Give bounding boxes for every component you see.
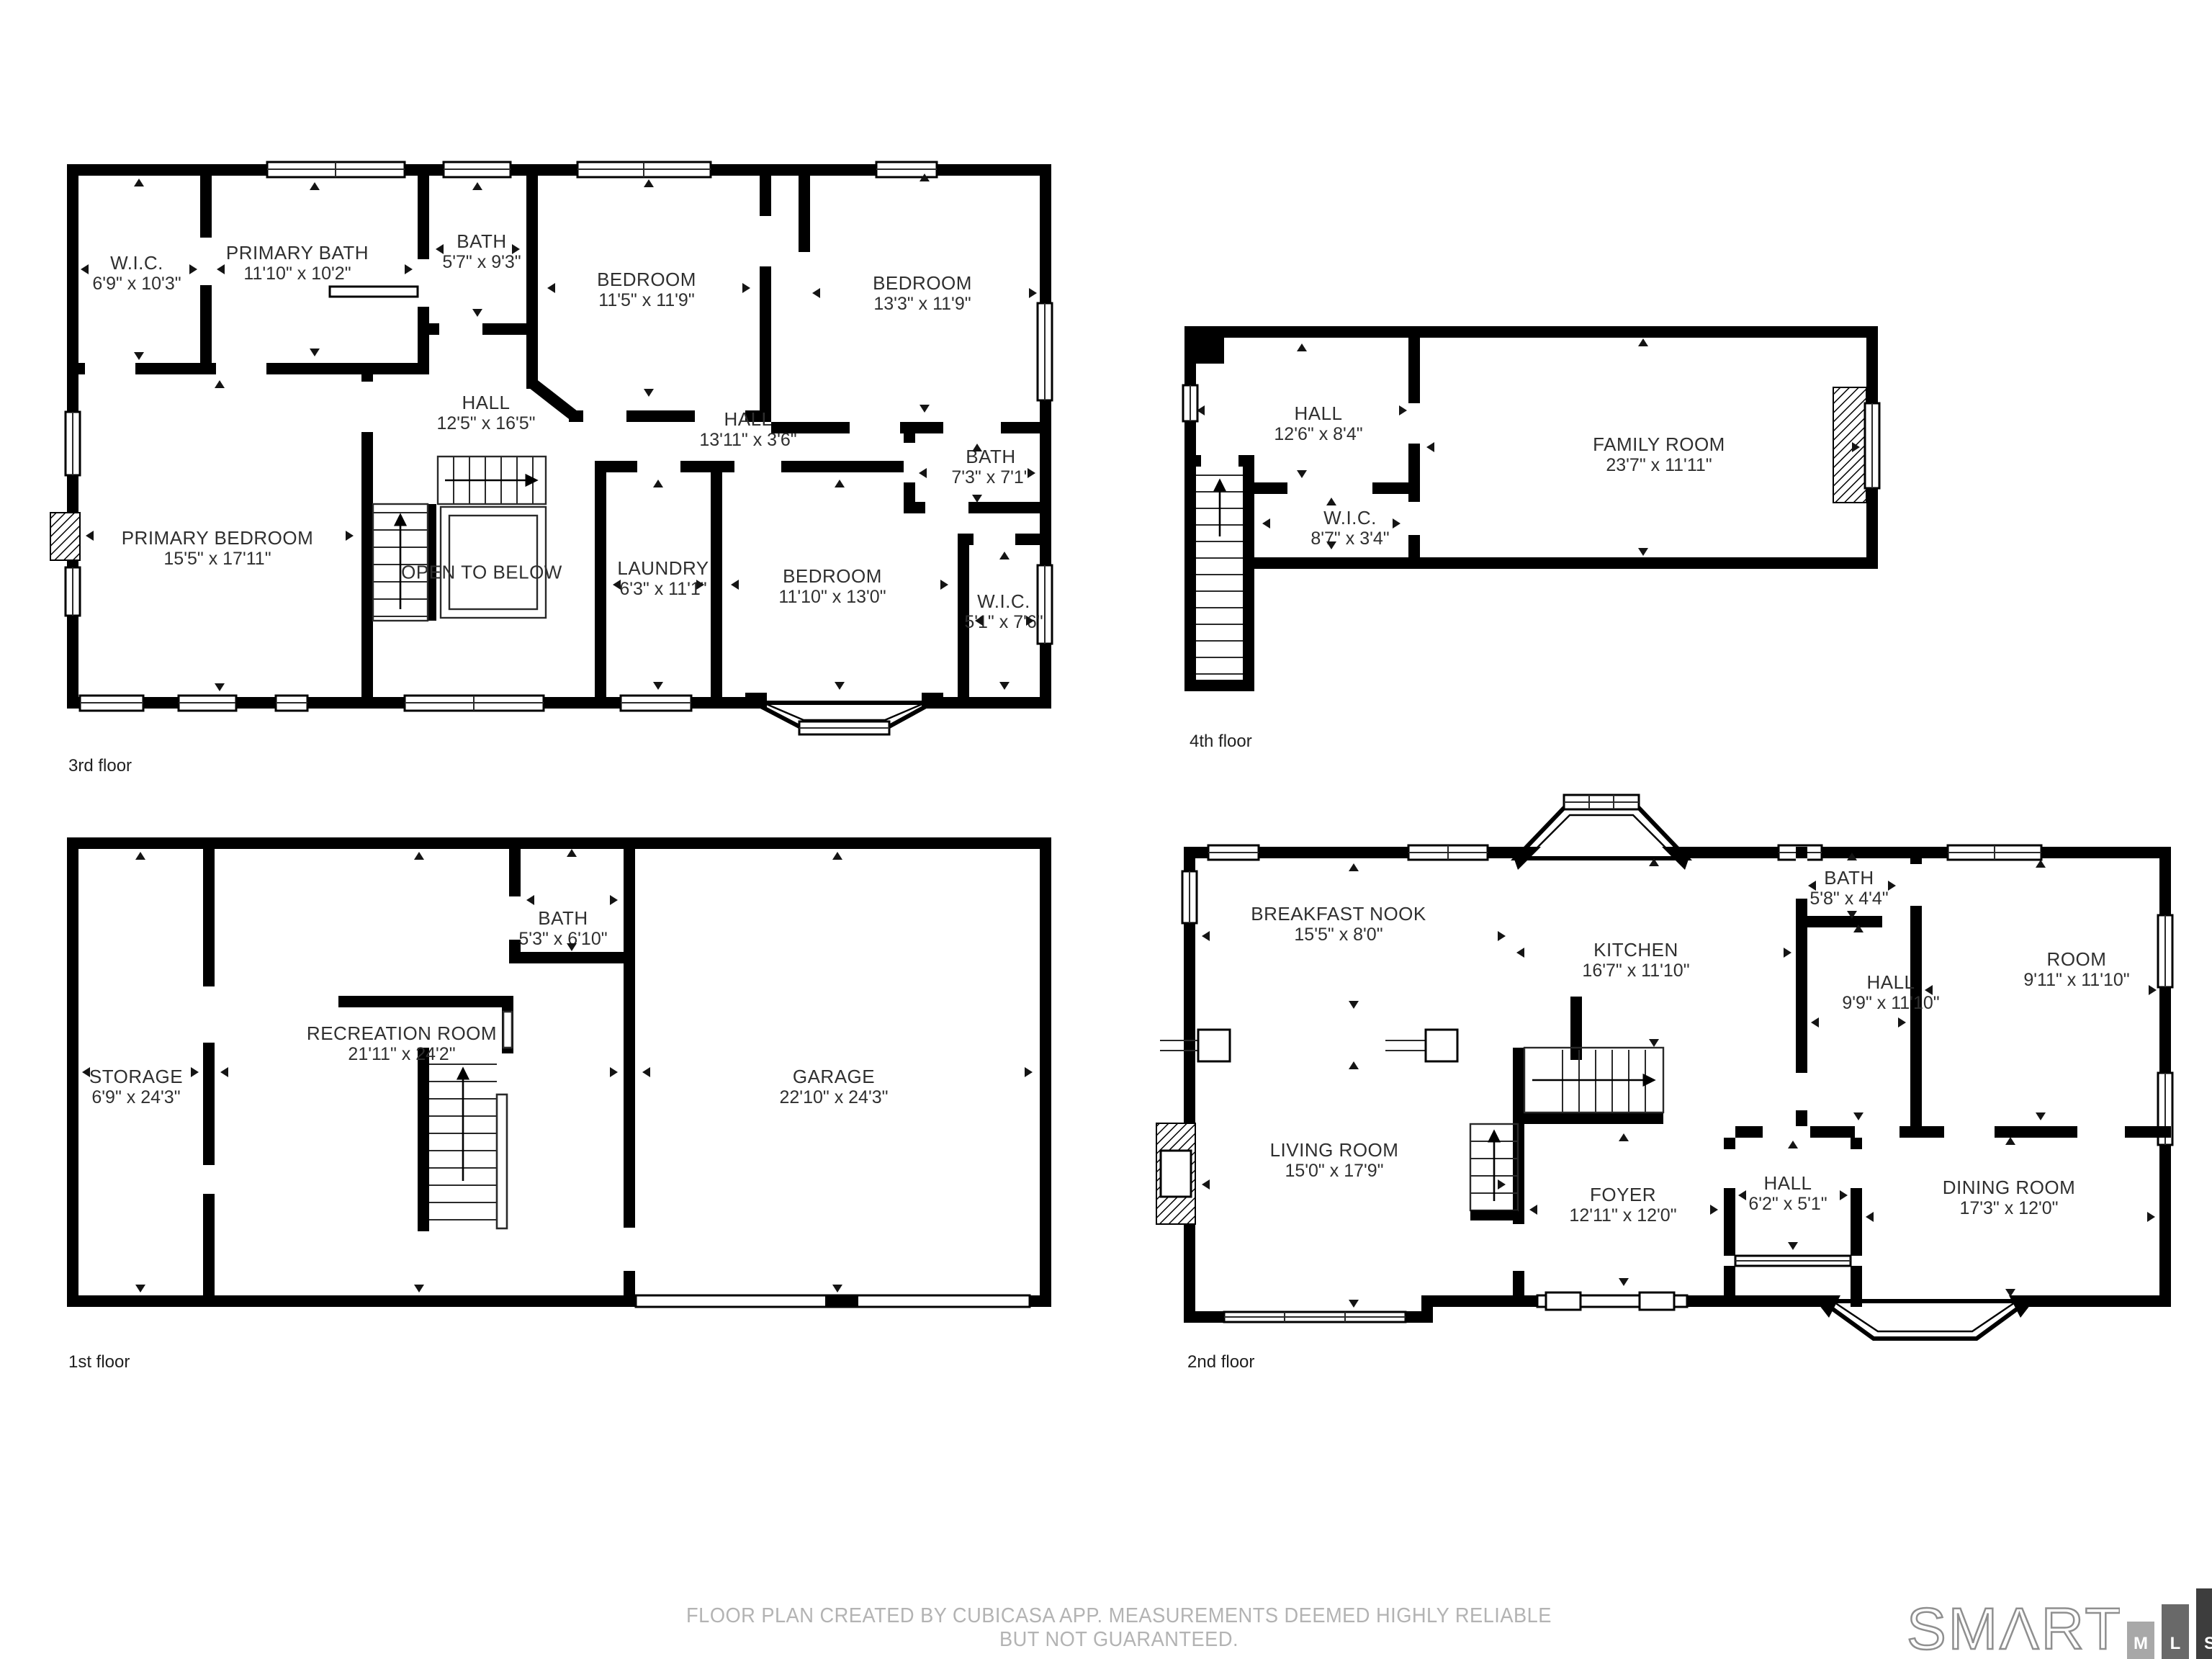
wall-midpoint-marker [512, 244, 520, 254]
room-label: BEDROOM11'5" x 11'9" [597, 269, 696, 311]
wall-midpoint-marker [653, 480, 663, 487]
room-label: HALL13'11" x 3'6" [699, 409, 796, 451]
mls-box-s: S [2196, 1588, 2212, 1659]
room-dimensions: 7'3" x 7'1" [951, 467, 1030, 488]
wall-midpoint-marker [644, 179, 654, 187]
wall-midpoint-marker [835, 480, 845, 487]
room-name: LAUNDRY [617, 558, 709, 579]
wall-midpoint-marker [1738, 1190, 1746, 1200]
wall-midpoint-marker [1847, 911, 1857, 919]
room-name: BATH [951, 446, 1030, 467]
room-name: BREAKFAST NOOK [1251, 904, 1426, 925]
wall-midpoint-marker [2036, 860, 2046, 868]
wall-midpoint-marker [1649, 858, 1659, 866]
wall-midpoint-marker [1029, 288, 1037, 298]
wall-midpoint-marker [1649, 1039, 1659, 1047]
floor-2-plan [1156, 795, 2172, 1339]
wall-midpoint-marker [1853, 925, 1863, 932]
wall-midpoint-marker [547, 283, 555, 293]
wall-midpoint-marker [919, 468, 927, 478]
wall-midpoint-marker [1847, 853, 1857, 860]
wall-midpoint-marker [414, 1285, 424, 1292]
room-name: OPEN TO BELOW [401, 562, 562, 583]
wall-midpoint-marker [613, 580, 621, 590]
room-label: PRIMARY BEDROOM15'5" x 17'11" [122, 528, 314, 570]
room-dimensions: 21'11" x 24'2" [307, 1044, 497, 1065]
wall-midpoint-marker [972, 495, 982, 503]
room-name: PRIMARY BATH [226, 243, 369, 264]
wall-midpoint-marker [217, 264, 225, 274]
room-dimensions: 9'9" x 11'10" [1842, 993, 1939, 1014]
room-label: BATH7'3" x 7'1" [951, 446, 1030, 488]
mls-box-l: L [2162, 1604, 2189, 1659]
wall-midpoint-marker [1866, 1212, 1874, 1222]
room-name: HALL [1748, 1173, 1827, 1194]
wall-midpoint-marker [1840, 1190, 1848, 1200]
room-dimensions: 12'11" x 12'0" [1569, 1205, 1676, 1226]
room-label: RECREATION ROOM21'11" x 24'2" [307, 1023, 497, 1065]
room-label: PRIMARY BATH11'10" x 10'2" [226, 243, 369, 284]
room-dimensions: 17'3" x 12'0" [1943, 1198, 2076, 1219]
wall-midpoint-marker [472, 309, 482, 317]
wall-midpoint-marker [1619, 1133, 1629, 1141]
wall-midpoint-marker [975, 616, 983, 626]
room-name: W.I.C. [92, 253, 181, 274]
wall-midpoint-marker [1197, 405, 1205, 415]
room-label: HALL12'6" x 8'4" [1274, 403, 1362, 445]
wall-midpoint-marker [1399, 405, 1407, 415]
room-dimensions: 12'6" x 8'4" [1274, 424, 1362, 445]
room-label: FAMILY ROOM23'7" x 11'11" [1593, 434, 1725, 476]
wall-midpoint-marker [1297, 470, 1307, 478]
room-dimensions: 16'7" x 11'10" [1582, 961, 1689, 981]
wall-midpoint-marker [1349, 863, 1359, 871]
floor-label-2nd: 2nd floor [1187, 1352, 1254, 1372]
wall-midpoint-marker [1202, 1179, 1210, 1190]
smart-wordmark: SMΛRT [1907, 1588, 2120, 1659]
floor-label-4th: 4th floor [1190, 732, 1252, 752]
wall-midpoint-marker [215, 683, 225, 691]
room-label: BATH5'3" x 6'10" [518, 908, 607, 950]
room-name: W.I.C. [1310, 508, 1389, 529]
mls-letter-m: M [2134, 1634, 2148, 1654]
wall-midpoint-marker [920, 174, 930, 181]
room-label: BEDROOM13'3" x 11'9" [873, 273, 972, 315]
room-label: LAUNDRY6'3" x 11'1" [617, 558, 709, 600]
room-label: LIVING ROOM15'0" x 17'9" [1270, 1140, 1399, 1182]
room-name: BEDROOM [778, 566, 886, 587]
wall-midpoint-marker [610, 1067, 618, 1077]
room-label: BREAKFAST NOOK15'5" x 8'0" [1251, 904, 1426, 945]
wall-midpoint-marker [1498, 931, 1506, 941]
room-label: ROOM9'11" x 11'10" [2023, 949, 2129, 991]
room-name: ROOM [2023, 949, 2129, 970]
room-dimensions: 11'5" x 11'9" [597, 290, 696, 311]
wall-midpoint-marker [1349, 1061, 1359, 1069]
wall-midpoint-marker [1888, 881, 1896, 891]
wall-midpoint-marker [1326, 541, 1336, 549]
room-dimensions: 23'7" x 11'11" [1593, 455, 1725, 476]
wall-midpoint-marker [696, 580, 704, 590]
wall-midpoint-marker [134, 179, 144, 186]
wall-midpoint-marker [310, 349, 320, 356]
wall-midpoint-marker [1638, 548, 1648, 556]
room-label: STORAGE6'9" x 24'3" [89, 1066, 183, 1108]
wall-midpoint-marker [191, 1067, 199, 1077]
wall-midpoint-marker [742, 283, 750, 293]
room-dimensions: 8'7" x 3'4" [1310, 529, 1389, 549]
wall-midpoint-marker [135, 852, 145, 860]
room-dimensions: 11'10" x 10'2" [226, 264, 369, 284]
room-label: W.I.C.8'7" x 3'4" [1310, 508, 1389, 549]
wall-midpoint-marker [1710, 1205, 1718, 1215]
room-label: KITCHEN16'7" x 11'10" [1582, 940, 1689, 981]
wall-midpoint-marker [1202, 931, 1210, 941]
room-name: W.I.C. [964, 591, 1043, 612]
wall-midpoint-marker [1638, 338, 1648, 346]
room-name: GARAGE [779, 1066, 888, 1087]
room-name: HALL [436, 392, 535, 413]
room-name: BATH [1809, 868, 1888, 889]
wall-midpoint-marker [215, 380, 225, 388]
floor-3-plan [50, 162, 1052, 734]
room-name: BATH [518, 908, 607, 929]
wall-midpoint-marker [134, 352, 144, 360]
wall-midpoint-marker [346, 531, 354, 541]
smart-wordmark-text: SMΛRT [1907, 1596, 2120, 1659]
room-label: BATH5'7" x 9'3" [442, 231, 521, 273]
room-dimensions: 6'9" x 10'3" [92, 274, 181, 295]
room-dimensions: 22'10" x 24'3" [779, 1087, 888, 1108]
room-dimensions: 15'0" x 17'9" [1270, 1161, 1399, 1182]
wall-midpoint-marker [1529, 1205, 1537, 1215]
room-dimensions: 12'5" x 16'5" [436, 413, 535, 434]
room-dimensions: 6'9" x 24'3" [89, 1087, 183, 1108]
wall-midpoint-marker [1498, 1179, 1506, 1190]
room-name: HALL [1274, 403, 1362, 424]
floor-label-3rd: 3rd floor [68, 756, 132, 776]
wall-midpoint-marker [1326, 498, 1336, 505]
wall-midpoint-marker [832, 1285, 842, 1292]
wall-midpoint-marker [812, 288, 820, 298]
wall-midpoint-marker [1393, 518, 1401, 529]
wall-midpoint-marker [405, 264, 413, 274]
room-dimensions: 6'2" x 5'1" [1748, 1194, 1827, 1215]
wall-midpoint-marker [567, 943, 577, 951]
wall-midpoint-marker [1853, 1112, 1863, 1120]
wall-midpoint-marker [1898, 1017, 1906, 1028]
wall-midpoint-marker [310, 182, 320, 190]
wall-midpoint-marker [1619, 1278, 1629, 1286]
room-dimensions: 5'3" x 6'10" [518, 929, 607, 950]
wall-midpoint-marker [972, 444, 982, 451]
smartmls-logo: SMΛRT M L S [1907, 1588, 2212, 1659]
wall-midpoint-marker [567, 849, 577, 857]
wall-midpoint-marker [1349, 1300, 1359, 1308]
wall-midpoint-marker [832, 852, 842, 860]
wall-midpoint-marker [1788, 1141, 1798, 1148]
wall-midpoint-marker [1426, 442, 1434, 452]
mls-letter-l: L [2170, 1634, 2181, 1654]
wall-midpoint-marker [653, 682, 663, 690]
room-name: LIVING ROOM [1270, 1140, 1399, 1161]
room-name: PRIMARY BEDROOM [122, 528, 314, 549]
wall-midpoint-marker [1028, 468, 1035, 478]
room-label: BATH5'8" x 4'4" [1809, 868, 1888, 909]
wall-midpoint-marker [1852, 442, 1860, 452]
wall-midpoint-marker [1811, 1017, 1819, 1028]
mls-box-m: M [2127, 1622, 2154, 1659]
room-dimensions: 5'7" x 9'3" [442, 252, 521, 273]
wall-midpoint-marker [999, 682, 1010, 690]
room-label: W.I.C.6'9" x 10'3" [92, 253, 181, 295]
wall-midpoint-marker [414, 852, 424, 860]
wall-midpoint-marker [835, 682, 845, 690]
wall-midpoint-marker [1788, 1242, 1798, 1250]
wall-midpoint-marker [86, 531, 94, 541]
room-label: OPEN TO BELOW [401, 562, 562, 583]
floorplan-canvas: W.I.C.6'9" x 10'3"PRIMARY BATH11'10" x 1… [0, 0, 2212, 1659]
room-name: RECREATION ROOM [307, 1023, 497, 1044]
wall-midpoint-marker [1808, 881, 1816, 891]
mls-letter-s: S [2204, 1634, 2212, 1654]
room-dimensions: 11'10" x 13'0" [778, 587, 886, 608]
wall-midpoint-marker [2005, 1289, 2015, 1297]
wall-midpoint-marker [644, 389, 654, 397]
wall-midpoint-marker [220, 1067, 228, 1077]
wall-midpoint-marker [999, 552, 1010, 559]
wall-midpoint-marker [189, 264, 197, 274]
room-dimensions: 15'5" x 17'11" [122, 549, 314, 570]
wall-midpoint-marker [135, 1285, 145, 1292]
wall-midpoint-marker [2036, 1112, 2046, 1120]
room-label: HALL12'5" x 16'5" [436, 392, 535, 434]
wall-midpoint-marker [642, 1067, 650, 1077]
wall-midpoint-marker [940, 580, 948, 590]
room-label: FOYER12'11" x 12'0" [1569, 1184, 1676, 1226]
room-name: FOYER [1569, 1184, 1676, 1205]
room-name: HALL [699, 409, 796, 430]
wall-midpoint-marker [436, 244, 444, 254]
room-dimensions: 13'3" x 11'9" [873, 294, 972, 315]
wall-midpoint-marker [472, 182, 482, 190]
room-name: BATH [442, 231, 521, 252]
floor-4-plan [1183, 326, 1879, 691]
wall-midpoint-marker [1784, 948, 1791, 958]
wall-midpoint-marker [82, 1067, 90, 1077]
room-label: BEDROOM11'10" x 13'0" [778, 566, 886, 608]
room-name: BEDROOM [873, 273, 972, 294]
room-label: DINING ROOM17'3" x 12'0" [1943, 1177, 2076, 1219]
wall-midpoint-marker [610, 895, 618, 905]
wall-midpoint-marker [2149, 985, 2157, 995]
room-label: HALL6'2" x 5'1" [1748, 1173, 1827, 1215]
wall-midpoint-marker [526, 895, 534, 905]
room-dimensions: 13'11" x 3'6" [699, 430, 796, 451]
wall-midpoint-marker [1349, 1001, 1359, 1009]
room-label: GARAGE22'10" x 24'3" [779, 1066, 888, 1108]
room-name: FAMILY ROOM [1593, 434, 1725, 455]
wall-midpoint-marker [1262, 518, 1270, 529]
room-dimensions: 5'8" x 4'4" [1809, 889, 1888, 909]
floor-label-1st: 1st floor [68, 1352, 130, 1372]
wall-midpoint-marker [1026, 616, 1034, 626]
room-label: W.I.C.5'1" x 7'6" [964, 591, 1043, 633]
wall-midpoint-marker [1925, 985, 1933, 995]
wall-midpoint-marker [2005, 1137, 2015, 1145]
wall-midpoint-marker [1297, 343, 1307, 351]
room-name: KITCHEN [1582, 940, 1689, 961]
wall-midpoint-marker [920, 405, 930, 413]
wall-midpoint-marker [731, 580, 739, 590]
room-dimensions: 9'11" x 11'10" [2023, 970, 2129, 991]
wall-midpoint-marker [2147, 1212, 2155, 1222]
disclaimer-text: FLOOR PLAN CREATED BY CUBICASA APP. MEAS… [679, 1604, 1559, 1652]
wall-midpoint-marker [81, 264, 89, 274]
wall-midpoint-marker [1025, 1067, 1033, 1077]
room-name: DINING ROOM [1943, 1177, 2076, 1198]
room-name: STORAGE [89, 1066, 183, 1087]
room-dimensions: 15'5" x 8'0" [1251, 925, 1426, 945]
wall-midpoint-marker [1516, 948, 1524, 958]
room-name: BEDROOM [597, 269, 696, 290]
